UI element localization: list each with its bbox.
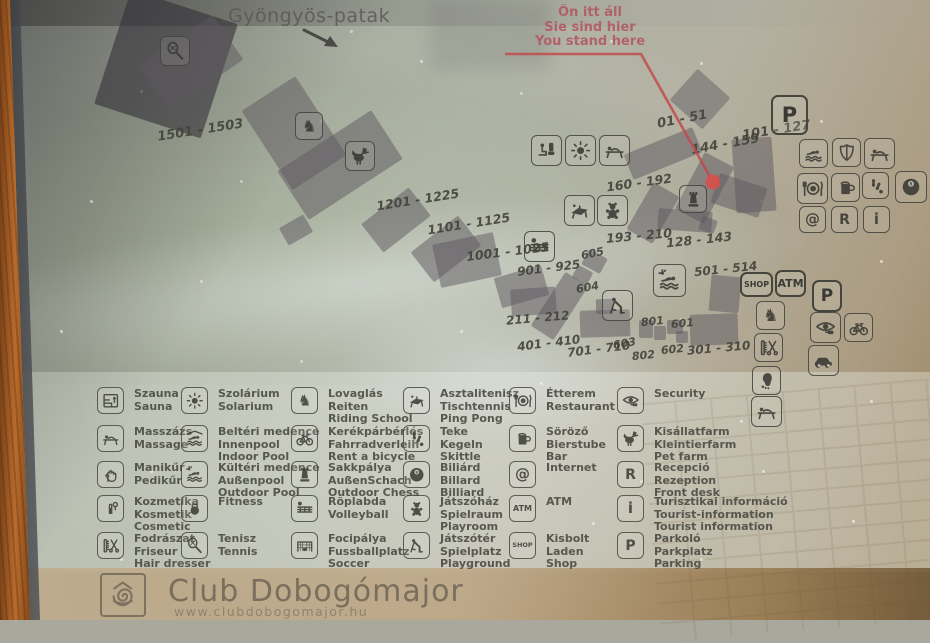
legend-label: TeniszTennis [218,532,257,558]
reception-icon: R [617,461,644,488]
parking-badge: P [812,280,842,312]
svg-text:♞: ♞ [298,391,312,409]
legend-item-petfarm: KisállatfarmKleintierfarmPet farm [617,425,736,464]
petfarm-icon [617,425,644,452]
legend-label: LovaglásReitenRiding School [328,387,413,426]
you-are-here-line-de: Sie sind hier [505,21,675,36]
legend-label: JátszóházSpielraumPlayroom [440,495,503,534]
legend-item-riding: ♞LovaglásReitenRiding School [291,387,413,426]
atm-badge: ATM [775,270,806,297]
you-are-here-label: Ön itt áll Sie sind hier You stand here [505,6,675,50]
legend-label: SzaunaSauna [134,387,179,413]
chess-icon [291,461,318,488]
legend-item-soccer: FocipályaFussballplatzSoccer [291,532,409,571]
legend-item-reception: RRecepcióRezeptionFront desk [617,461,720,500]
legend-label: ÉtteremRestaurant [546,387,615,413]
internet-icon: @ [509,461,536,488]
hairdresser-icon [97,532,124,559]
legend-label: SörözőBierstubeBar [546,425,606,464]
volleyball-icon [291,495,318,522]
river-arrow-icon [298,24,344,54]
legend-item-manicure: ManikűrPedikűr [97,461,185,488]
restaurant-icon [509,387,536,414]
legend-item-solarium: SzoláriumSolarium [181,387,280,414]
legend-label: BiliárdBillardBilliard [440,461,484,500]
riding-icon: ♞ [291,387,318,414]
legend-item-playground: JátszótérSpielplatzPlayground [403,532,510,571]
billiard-icon: 8 [403,461,430,488]
info-icon: i [617,495,644,522]
legend-item-pingpong: AsztaliteniszTischtennisPing Pong [403,387,519,426]
legend-item-fitness: Fitness [181,495,263,522]
legend-item-atm: ATMATM [509,495,572,522]
legend-item-massage: MasszázsMassage [97,425,192,452]
playground-icon [403,532,430,559]
legend-label: RöplabdaVolleyball [328,495,388,521]
atm-icon: ATM [509,495,536,522]
legend-item-shop: SHOPKisboltLadenShop [509,532,589,571]
manicure-icon [97,461,124,488]
legend-label: Fitness [218,495,263,509]
legend-label: KisállatfarmKleintierfarmPet farm [654,425,736,464]
shop-icon: SHOP [509,532,536,559]
fitness-icon [181,495,208,522]
legend-label: KisboltLadenShop [546,532,589,571]
outdoor-pool-icon [181,461,208,488]
legend-label: TekeKegelnSkittle [440,425,483,464]
skittle-icon [403,425,430,452]
legend-label: RecepcióRezeptionFront desk [654,461,720,500]
legend-item-volleyball: RöplabdaVolleyball [291,495,388,522]
cosmetic-icon [97,495,124,522]
parking-badge: P [771,95,808,135]
legend-label: FocipályaFussballplatzSoccer [328,532,409,571]
legend-item-internet: @Internet [509,461,597,488]
bicycle-icon [291,425,318,452]
legend-item-playroom: JátszóházSpielraumPlayroom [403,495,503,534]
pingpong-icon [403,387,430,414]
legend-item-sauna: SzaunaSauna [97,387,179,414]
playroom-icon [403,495,430,522]
legend-label: ParkolóParkplatzParking [654,532,713,571]
legend-label: ATM [546,495,572,509]
legend-label: Turisztikai információTourist-informatio… [654,495,788,534]
legend-label: JátszótérSpielplatzPlayground [440,532,510,571]
soccer-icon [291,532,318,559]
legend-item-info: iTurisztikai információTourist-informati… [617,495,788,534]
bar-icon [509,425,536,452]
shop-badge: SHOP [740,272,773,297]
snail-logo-icon [100,573,146,617]
legend-item-skittle: TekeKegelnSkittle [403,425,483,464]
legend-item-chess: SakkpályaAußenSchachOutdoor Chess [291,461,419,500]
massage-icon [97,425,124,452]
tennis-racket-icon [181,532,208,559]
legend-item-bar: SörözőBierstubeBar [509,425,606,464]
svg-text:8: 8 [415,470,418,474]
resort-url: www.clubdobogomajor.hu [174,604,368,619]
indoor-pool-icon [181,425,208,452]
solarium-icon [181,387,208,414]
legend-item-restaurant: ÉtteremRestaurant [509,387,615,414]
legend-item-tennis-racket: TeniszTennis [181,532,257,559]
legend-label: AsztaliteniszTischtennisPing Pong [440,387,519,426]
parking-icon: P [617,532,644,559]
legend-item-parking: PParkolóParkplatzParking [617,532,713,571]
sauna-icon [97,387,124,414]
legend-label: Internet [546,461,597,475]
legend-label: Security [654,387,705,401]
legend-item-billiard: 8BiliárdBillardBilliard [403,461,484,500]
you-are-here-line-hu: Ön itt áll [505,6,675,21]
legend-item-security: Security [617,387,705,414]
legend-label: SzoláriumSolarium [218,387,280,413]
you-are-here-marker [495,45,735,200]
legend-label: ManikűrPedikűr [134,461,185,487]
security-icon [617,387,644,414]
